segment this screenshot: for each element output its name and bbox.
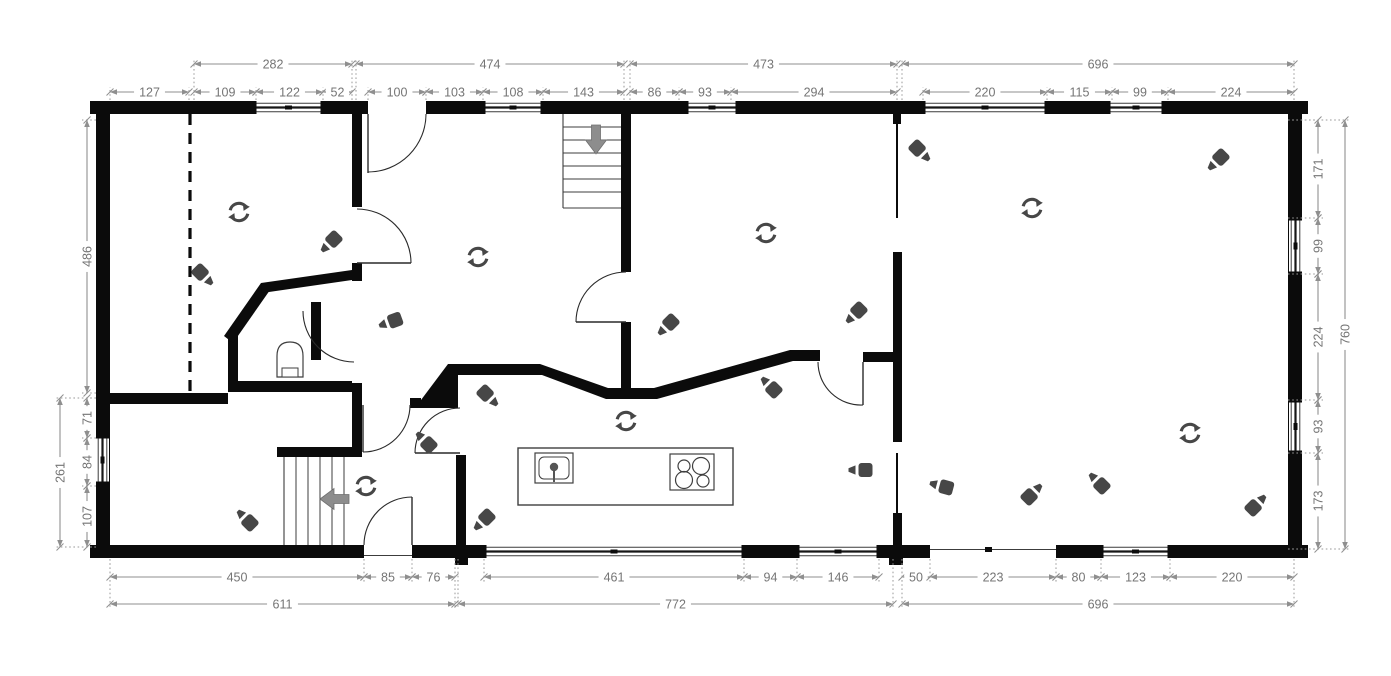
floor-plan-canvas: 2824744736961271091225210010310814386932… bbox=[0, 0, 1391, 676]
dimension-label: 143 bbox=[573, 85, 594, 99]
dimension: 294 bbox=[728, 85, 901, 100]
wall-segment bbox=[863, 352, 895, 362]
dimension-label: 85 bbox=[381, 570, 395, 584]
door-swing-arc bbox=[368, 114, 426, 172]
dimension: 473 bbox=[627, 57, 901, 72]
dimension-label: 294 bbox=[804, 85, 825, 99]
dimension: 107 bbox=[80, 483, 95, 551]
dimension: 223 bbox=[927, 570, 1060, 585]
dimension-label: 107 bbox=[80, 506, 94, 527]
dimension: 127 bbox=[107, 85, 193, 100]
dimension: 611 bbox=[107, 597, 459, 612]
cooktop-icon bbox=[670, 454, 714, 490]
dimension: 52 bbox=[320, 85, 356, 100]
wall-segment bbox=[90, 101, 96, 114]
wall-segment bbox=[352, 383, 362, 457]
dimension: 486 bbox=[80, 117, 95, 397]
wall-segment bbox=[889, 558, 903, 565]
dimension: 143 bbox=[540, 85, 628, 100]
wall-segment bbox=[893, 513, 902, 545]
wall-segment bbox=[96, 393, 228, 404]
window bbox=[254, 101, 323, 114]
dimension-label: 282 bbox=[263, 57, 284, 71]
wall-segment bbox=[352, 114, 362, 207]
thin-wall-segment bbox=[896, 114, 898, 218]
dimension: 100 bbox=[365, 85, 430, 100]
wall-segment bbox=[621, 322, 631, 390]
door-swing-arc bbox=[818, 362, 863, 405]
dimension: 93 bbox=[1311, 397, 1326, 457]
rotate-360-icon[interactable] bbox=[467, 248, 489, 266]
wall-segment bbox=[455, 558, 468, 565]
dimension: 50 bbox=[899, 570, 934, 585]
door-swing-arc bbox=[363, 405, 410, 452]
dimension-label: 84 bbox=[80, 455, 94, 469]
dimension: 220 bbox=[1167, 570, 1298, 585]
dimension: 122 bbox=[253, 85, 327, 100]
thin-wall-segment bbox=[896, 453, 898, 513]
stair-direction-arrow-icon bbox=[320, 489, 349, 510]
wall-segment bbox=[893, 252, 902, 442]
camera-icon[interactable] bbox=[190, 262, 217, 289]
dimension-label: 223 bbox=[983, 570, 1004, 584]
dimension-label: 99 bbox=[1133, 85, 1147, 99]
camera-icon[interactable] bbox=[928, 476, 955, 496]
door bbox=[303, 311, 354, 362]
dimension-label: 76 bbox=[427, 570, 441, 584]
camera-icon[interactable] bbox=[1243, 491, 1270, 518]
toilet-icon bbox=[277, 342, 303, 377]
dimension-label: 127 bbox=[139, 85, 160, 99]
floor-plan-page: 2824744736961271091225210010310814386932… bbox=[0, 0, 1391, 676]
door-swing-arc bbox=[303, 311, 354, 362]
dimension: 760 bbox=[1338, 117, 1353, 553]
opening-tick bbox=[985, 547, 992, 552]
dimension-label: 696 bbox=[1088, 57, 1109, 71]
dimension: 85 bbox=[361, 570, 416, 585]
dimension-label: 93 bbox=[698, 85, 712, 99]
dimension-label: 100 bbox=[387, 85, 408, 99]
dimension-label: 80 bbox=[1072, 570, 1086, 584]
dimension: 103 bbox=[423, 85, 487, 100]
door-swing-arc bbox=[357, 209, 411, 263]
dimension-label: 123 bbox=[1125, 570, 1146, 584]
dimension: 108 bbox=[480, 85, 547, 100]
dimension: 80 bbox=[1053, 570, 1105, 585]
dimension-label: 109 bbox=[215, 85, 236, 99]
dimension: 76 bbox=[409, 570, 459, 585]
dimension: 86 bbox=[627, 85, 683, 100]
dimension-label: 611 bbox=[273, 597, 293, 611]
door bbox=[364, 497, 412, 545]
dimension: 109 bbox=[191, 85, 260, 100]
dimension-label: 473 bbox=[753, 57, 774, 71]
camera-icon[interactable] bbox=[470, 507, 497, 534]
wall-segment bbox=[352, 263, 362, 281]
wall-segment bbox=[277, 447, 362, 457]
camera-icon[interactable] bbox=[654, 312, 681, 339]
wall-segment bbox=[261, 270, 352, 293]
wall-segment bbox=[621, 114, 631, 272]
camera-icon[interactable] bbox=[1204, 147, 1231, 174]
wall-segment bbox=[1302, 545, 1308, 558]
door bbox=[363, 405, 410, 452]
dimension-label: 461 bbox=[604, 570, 625, 584]
dimension-label: 108 bbox=[503, 85, 524, 99]
dimension-label: 99 bbox=[1311, 239, 1325, 253]
wall-segment bbox=[1302, 101, 1308, 114]
dimension: 224 bbox=[1165, 85, 1298, 100]
camera-icon[interactable] bbox=[842, 300, 869, 327]
dimension: 115 bbox=[1044, 85, 1116, 100]
window bbox=[483, 101, 543, 114]
dimension-label: 450 bbox=[227, 570, 248, 584]
dimension-label: 220 bbox=[975, 85, 996, 99]
dimension: 261 bbox=[53, 395, 68, 551]
rotate-360-icon[interactable] bbox=[615, 412, 637, 430]
dimension: 171 bbox=[1311, 117, 1326, 222]
wall-opening bbox=[368, 100, 426, 115]
wall-segment bbox=[458, 350, 820, 399]
dimension: 220 bbox=[920, 85, 1051, 100]
camera-icon[interactable] bbox=[907, 138, 934, 165]
camera-icon[interactable] bbox=[1085, 469, 1112, 496]
dimension-label: 103 bbox=[444, 85, 465, 99]
door bbox=[576, 272, 626, 322]
dimension: 282 bbox=[191, 57, 356, 72]
window bbox=[797, 545, 879, 558]
wall-opening bbox=[364, 544, 412, 559]
door-swing-arc bbox=[576, 272, 626, 322]
dimension-label: 486 bbox=[80, 246, 94, 267]
dimension-label: 52 bbox=[331, 85, 345, 99]
dimension: 123 bbox=[1098, 570, 1174, 585]
dimension-label: 94 bbox=[764, 570, 778, 584]
camera-icon[interactable] bbox=[317, 229, 344, 256]
dimension-label: 224 bbox=[1221, 85, 1242, 99]
rotate-360-icon[interactable] bbox=[228, 203, 250, 221]
wall-segment bbox=[1288, 101, 1302, 558]
camera-icon[interactable] bbox=[757, 373, 784, 400]
dimension: 94 bbox=[741, 570, 801, 585]
dimension: 84 bbox=[80, 435, 95, 490]
window bbox=[1289, 218, 1302, 274]
wall-segment bbox=[311, 302, 321, 360]
dimension-label: 220 bbox=[1222, 570, 1243, 584]
dimension: 696 bbox=[899, 597, 1298, 612]
dimension-label: 93 bbox=[1311, 420, 1325, 434]
door bbox=[368, 114, 426, 173]
window bbox=[484, 545, 744, 558]
wall-segment bbox=[96, 101, 110, 558]
dimension-label: 261 bbox=[53, 462, 67, 483]
window bbox=[1108, 101, 1164, 114]
dimension: 772 bbox=[455, 597, 897, 612]
window bbox=[1101, 545, 1170, 558]
dimension-label: 146 bbox=[828, 570, 849, 584]
kitchen-sink-icon bbox=[535, 453, 573, 483]
door-swing-arc bbox=[364, 497, 412, 545]
rotate-360-icon[interactable] bbox=[355, 477, 377, 495]
wall-segment bbox=[456, 455, 466, 545]
dimension-label: 173 bbox=[1311, 491, 1325, 512]
dimension-label: 122 bbox=[279, 85, 300, 99]
camera-icon[interactable] bbox=[475, 383, 502, 410]
dimension-label: 71 bbox=[80, 411, 94, 425]
window bbox=[96, 436, 109, 484]
dimension: 146 bbox=[794, 570, 883, 585]
dimension: 461 bbox=[481, 570, 748, 585]
dimension-label: 86 bbox=[648, 85, 662, 99]
door bbox=[357, 209, 411, 263]
dimension: 71 bbox=[80, 395, 95, 442]
rotate-360-icon[interactable] bbox=[755, 224, 777, 242]
wall-segment bbox=[228, 381, 352, 392]
camera-icon[interactable] bbox=[233, 506, 260, 533]
camera-icon[interactable] bbox=[849, 463, 873, 477]
dimension-label: 50 bbox=[909, 570, 923, 584]
wall-opening bbox=[930, 544, 1056, 559]
wall-segment bbox=[415, 364, 458, 408]
dimension-label: 760 bbox=[1338, 324, 1352, 345]
dimension-label: 115 bbox=[1070, 85, 1090, 99]
dimension-label: 224 bbox=[1311, 327, 1325, 348]
rotate-360-icon[interactable] bbox=[1179, 424, 1201, 442]
camera-icon[interactable] bbox=[1019, 480, 1046, 507]
dimension: 696 bbox=[899, 57, 1298, 72]
dimension: 224 bbox=[1311, 271, 1326, 404]
camera-icon[interactable] bbox=[377, 311, 404, 332]
window bbox=[1289, 400, 1302, 453]
dimension: 173 bbox=[1311, 450, 1326, 553]
door bbox=[818, 362, 863, 405]
dimension: 474 bbox=[353, 57, 628, 72]
dimension-label: 171 bbox=[1311, 159, 1325, 180]
dimension: 93 bbox=[676, 85, 735, 100]
dimension: 450 bbox=[107, 570, 368, 585]
dimension: 99 bbox=[1311, 215, 1326, 278]
dimension-label: 772 bbox=[665, 597, 686, 611]
dimension-label: 474 bbox=[480, 57, 501, 71]
dimension: 99 bbox=[1109, 85, 1172, 100]
rotate-360-icon[interactable] bbox=[1021, 199, 1043, 217]
window bbox=[686, 101, 738, 114]
dimension-label: 696 bbox=[1088, 597, 1109, 611]
window bbox=[923, 101, 1047, 114]
